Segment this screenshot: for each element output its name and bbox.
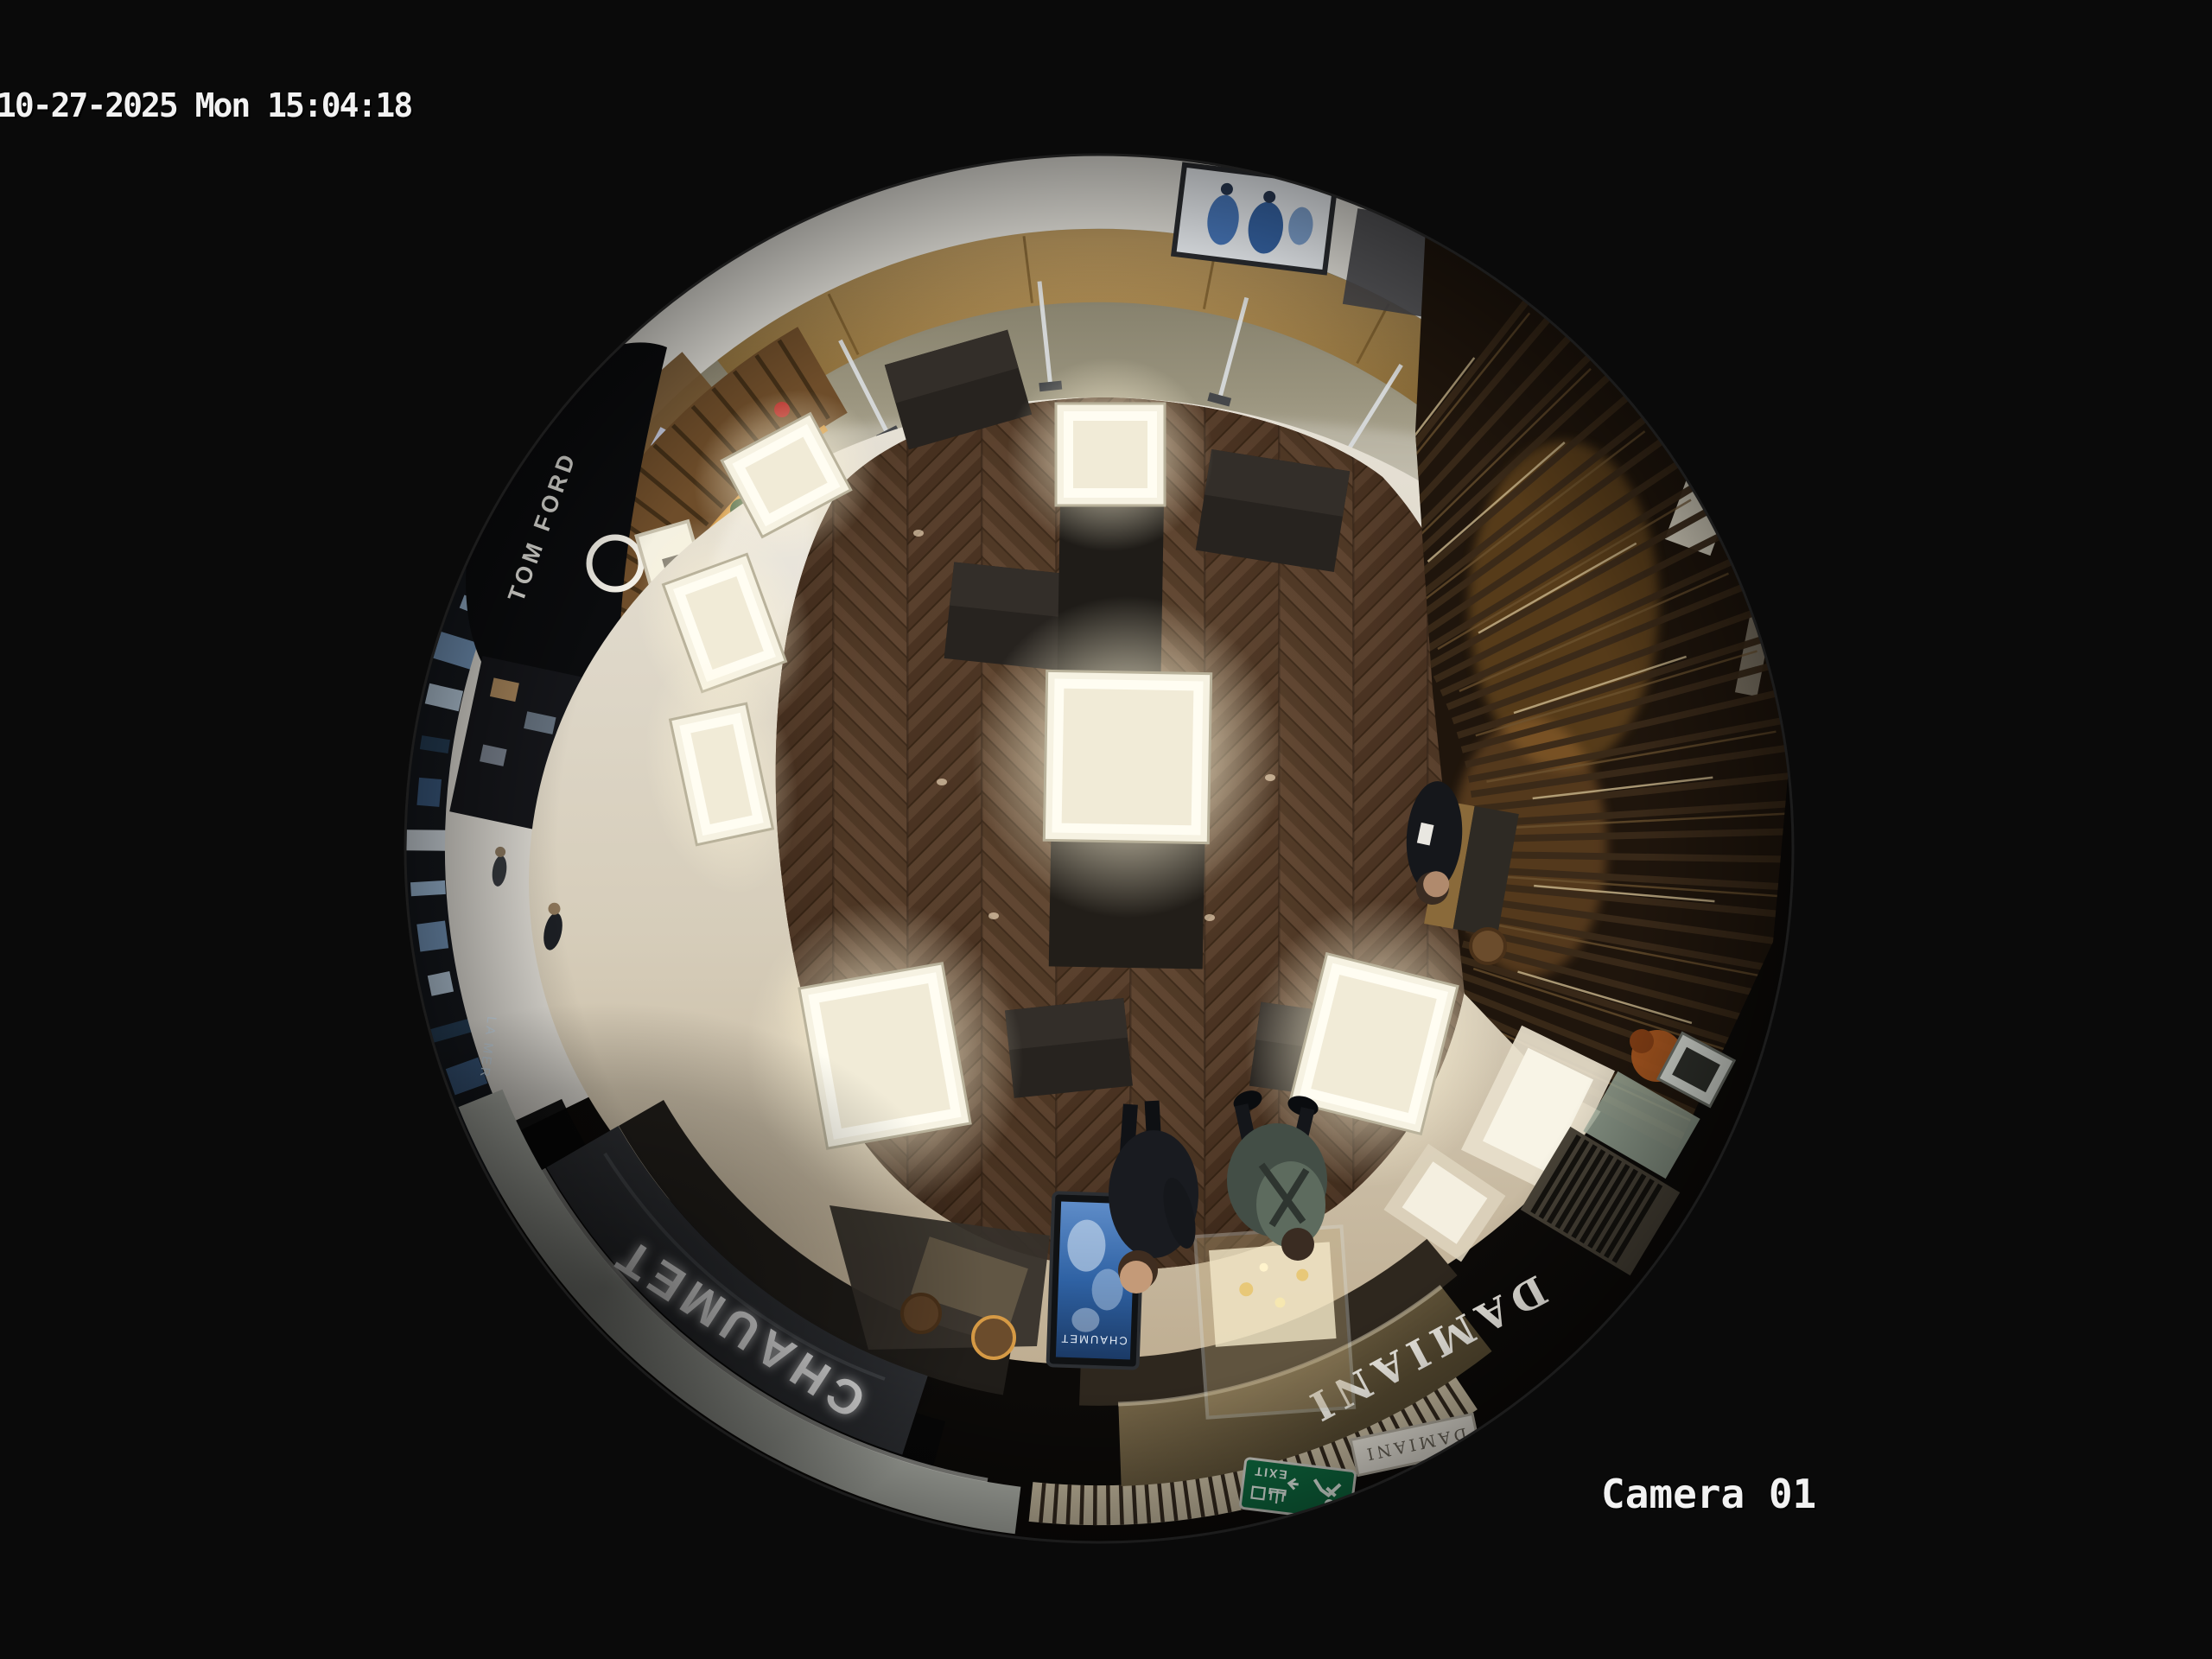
fisheye-scene: LA MER TOM FORD [225, 95, 1866, 1616]
camera-label-osd: Camera 01 [1601, 1471, 1816, 1517]
fisheye-view: LA MER TOM FORD [0, 0, 2212, 1659]
timestamp-osd: 10-27-2025 Mon 15:04:18 [0, 86, 411, 124]
lens-vignette [405, 155, 1793, 1542]
cctv-frame: LA MER TOM FORD [0, 0, 2212, 1659]
